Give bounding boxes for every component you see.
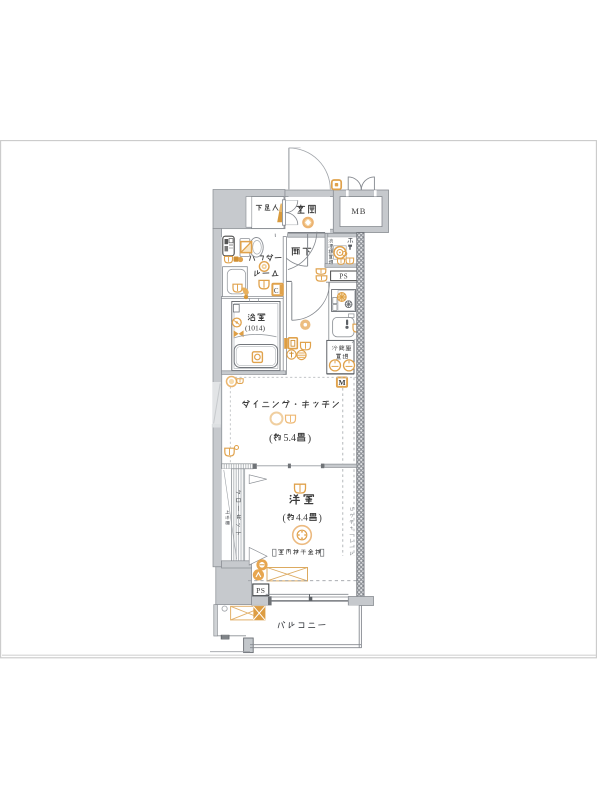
svg-text:M: M [338, 378, 345, 387]
svg-text:): ) [308, 433, 312, 445]
svg-text:(: ( [269, 433, 273, 445]
svg-text:4.4: 4.4 [296, 514, 308, 524]
svg-text:): ) [319, 513, 322, 524]
svg-text:PS: PS [256, 586, 265, 595]
svg-text:C: C [274, 287, 279, 295]
svg-text:PS: PS [339, 272, 348, 280]
svg-text:5.4: 5.4 [284, 433, 297, 444]
svg-text:(1014): (1014) [245, 324, 265, 333]
svg-text:MB: MB [351, 206, 366, 216]
